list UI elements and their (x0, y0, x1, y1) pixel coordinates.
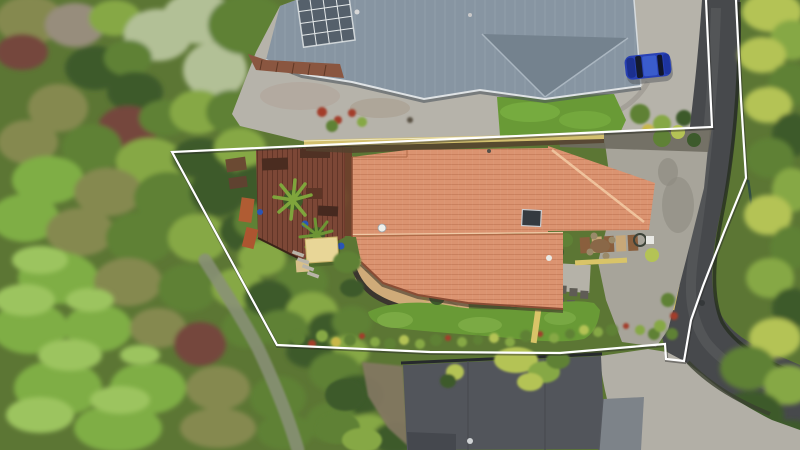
parked-blue-car (624, 52, 674, 86)
aerial-photo (0, 0, 800, 450)
aerial-photo-stage (0, 0, 800, 450)
roof-vent (468, 13, 472, 17)
roof-vent (355, 10, 360, 15)
roof-vent (467, 438, 473, 444)
skylight (522, 210, 542, 227)
blue-pot (257, 209, 263, 215)
lower-roof-wing (599, 397, 644, 450)
deck-planter (262, 158, 288, 171)
conservatory-glass-roof (297, 0, 355, 47)
roof-vent (546, 255, 552, 261)
raised-bed (225, 157, 247, 173)
satellite-dish (378, 224, 386, 232)
neighbor-house-north (232, 0, 712, 142)
deck-planter (318, 205, 338, 216)
